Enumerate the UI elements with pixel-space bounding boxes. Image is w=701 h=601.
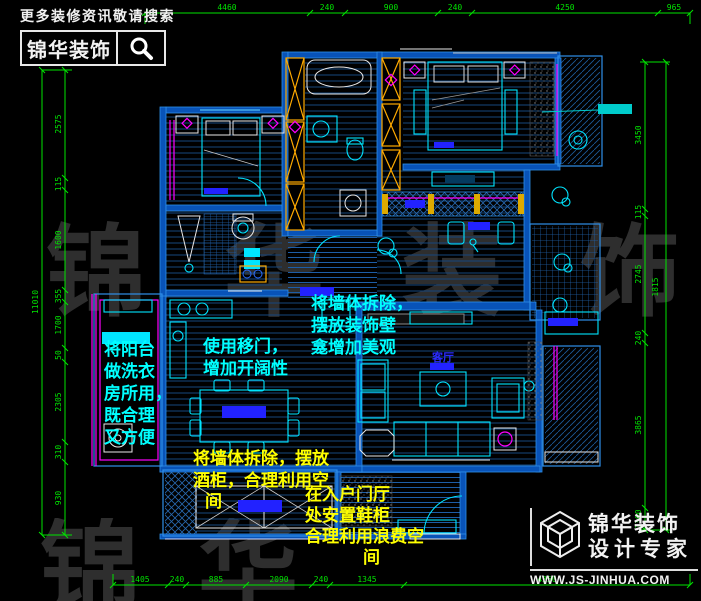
- dim-label: 240: [170, 575, 185, 584]
- dim-label: 885: [209, 575, 224, 584]
- brand-logo-text: 锦华装饰: [22, 34, 116, 63]
- dim-label: 2745: [634, 264, 643, 283]
- svg-text:房所用，: 房所用，: [104, 383, 172, 403]
- shelf: [244, 260, 260, 269]
- dim-label: 1600: [54, 230, 63, 249]
- divider: [530, 569, 698, 571]
- svg-text:摆放装饰壁: 摆放装饰壁: [311, 315, 396, 335]
- dim-label: 355: [54, 289, 63, 304]
- shelf: [244, 248, 260, 257]
- dim-label: 50: [54, 350, 63, 360]
- search-tagline: 更多装修资讯敬请搜索: [20, 6, 175, 26]
- dimension-chain-right: 3450 115 2745 240 3865 1300 1815: [634, 59, 670, 533]
- dim-label: 2305: [54, 392, 63, 411]
- top-left-branding: 更多装修资讯敬请搜索 锦华装饰: [20, 6, 175, 66]
- dim-label: 2575: [54, 114, 63, 133]
- dim-label: 115: [54, 177, 63, 192]
- cad-floorplan-drawing: 锦华装饰 锦华装饰: [0, 0, 701, 601]
- dim-label: 3865: [634, 415, 643, 434]
- room-label-blob: [238, 500, 282, 512]
- dim-label: 240: [320, 3, 335, 12]
- tile-area: [204, 214, 236, 274]
- company-name: 锦华装饰: [588, 512, 692, 537]
- svg-text:又方便: 又方便: [104, 427, 156, 447]
- room-label-blob: [430, 363, 454, 370]
- search-icon: [118, 34, 164, 62]
- dim-label: 900: [384, 3, 399, 12]
- dim-label: 1700: [54, 315, 63, 334]
- shelf: [104, 300, 152, 312]
- room-label-blob: [204, 188, 228, 194]
- room-label-blob: [434, 142, 454, 148]
- dim-label: 1815: [651, 277, 660, 296]
- wardrobe-strip-left: [286, 58, 304, 230]
- svg-text:将墙体拆除，: 将墙体拆除，: [311, 293, 413, 313]
- balcony-bottom-right: [545, 348, 598, 464]
- room-label-blob: [548, 318, 578, 326]
- room-label-blob: [468, 222, 490, 230]
- dim-label-total: 11010: [31, 290, 40, 314]
- svg-text:将墙体拆除，摆放: 将墙体拆除，摆放: [193, 448, 330, 468]
- room-label-blob: [222, 406, 266, 418]
- bottom-right-branding: 锦华装饰 设计专家 WWW.JS-JINHUA.COM: [530, 508, 698, 587]
- dimension-chain-left: 2575 115 1600 355 1700 50 2305 310 930 1…: [31, 67, 72, 538]
- dim-label: 965: [667, 3, 682, 12]
- svg-text:在入户门厅: 在入户门厅: [305, 484, 390, 504]
- dim-label: 4460: [217, 3, 236, 12]
- svg-text:既合理: 既合理: [104, 405, 155, 425]
- svg-text:间: 间: [363, 547, 380, 567]
- svg-text:使用移门，: 使用移门，: [202, 336, 288, 356]
- dim-label: 2090: [269, 575, 288, 584]
- cube-logo-icon: [537, 509, 583, 566]
- room-label-living: 客厅: [431, 350, 454, 364]
- dim-label: 310: [54, 445, 63, 460]
- svg-text:做洗衣: 做洗衣: [103, 361, 155, 381]
- svg-text:处安置鞋柜: 处安置鞋柜: [304, 505, 390, 525]
- dim-label: 930: [54, 491, 63, 506]
- callout-tag: [598, 104, 632, 114]
- dim-label: 1405: [130, 575, 149, 584]
- svg-text:龛增加美观: 龛增加美观: [310, 337, 396, 357]
- knob-diamond: [289, 121, 300, 132]
- dim-label: 1345: [357, 575, 376, 584]
- dim-label: 240: [448, 3, 463, 12]
- room-label-blob: [405, 200, 425, 208]
- balcony-mid-right: [532, 226, 598, 318]
- svg-text:合理利用浪费空: 合理利用浪费空: [305, 526, 424, 546]
- svg-text:将阳台: 将阳台: [104, 339, 155, 359]
- divider: [530, 508, 532, 566]
- dim-label: 115: [634, 205, 643, 220]
- dim-label: 4250: [555, 3, 574, 12]
- company-subtitle: 设计专家: [588, 537, 692, 562]
- feature-wall: [530, 62, 554, 156]
- closet-sliding-door: [382, 192, 524, 216]
- dimension-chain-top: 4460 240 900 240 4250 965: [142, 3, 693, 24]
- dim-label: 3450: [634, 125, 643, 144]
- dim-label: 240: [314, 575, 329, 584]
- svg-text:增加开阔性: 增加开阔性: [203, 358, 288, 378]
- company-url: WWW.JS-JINHUA.COM: [530, 573, 698, 587]
- search-logo-box: 锦华装饰: [20, 30, 166, 66]
- stone-pillar: [528, 342, 542, 420]
- svg-text:间: 间: [205, 491, 222, 511]
- dim-label: 240: [634, 331, 643, 346]
